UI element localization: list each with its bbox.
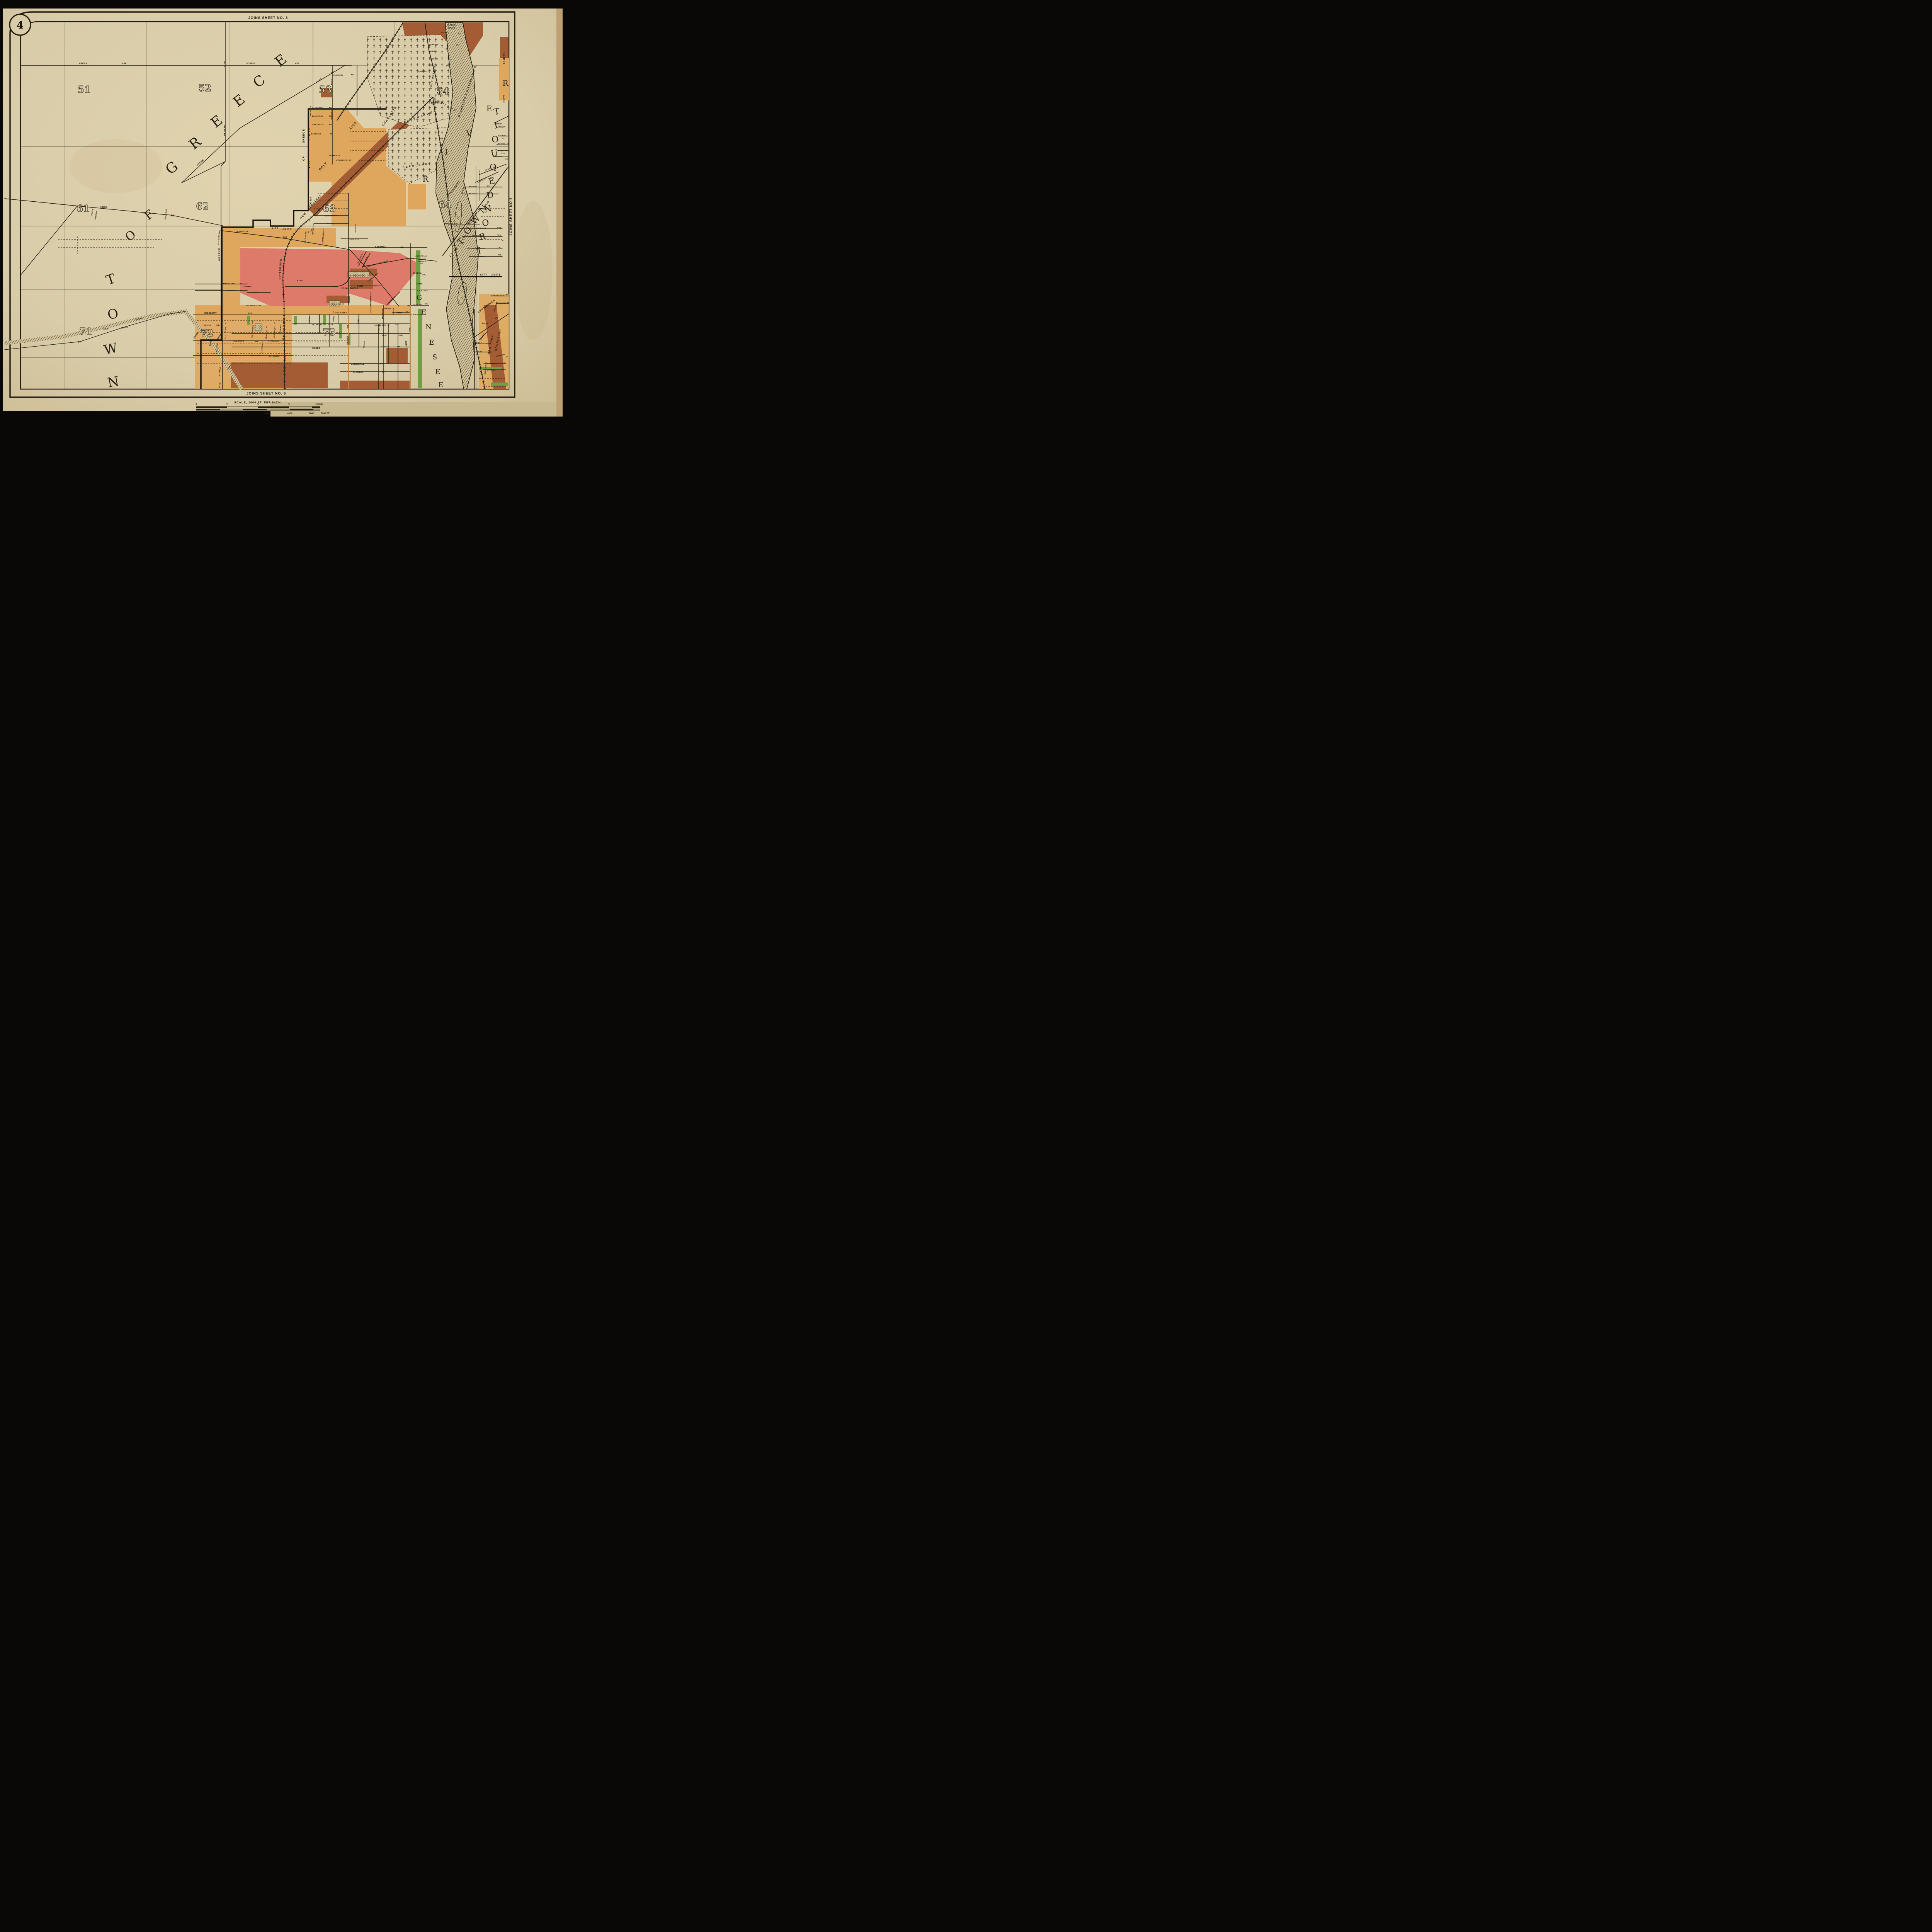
map-label: RD.	[329, 115, 333, 117]
map-label: RD.	[329, 124, 333, 126]
map-label: ROAD	[331, 79, 333, 85]
map-label: ST.	[487, 192, 490, 194]
map-label: LEWISTON	[236, 231, 248, 233]
map-label: ST.	[265, 325, 268, 328]
map-label: FLOWER CITY PK.	[374, 324, 389, 326]
map-label: WESTON	[430, 58, 438, 60]
map-label: AVE.	[398, 334, 403, 336]
map-label: JOINS SHEET NO. 3	[248, 16, 288, 20]
map-label: GATEWAY	[496, 126, 505, 128]
map-label: 4000	[287, 413, 293, 415]
map-label: ST.	[382, 371, 384, 373]
map-label: REQUA	[475, 342, 482, 344]
map-label: DEWEY	[347, 335, 349, 345]
map-label: JOINS SHEET NO. 6	[247, 391, 286, 395]
map-label: ST.	[448, 58, 451, 60]
map-label: ST.	[488, 351, 491, 353]
map-label: 52	[198, 82, 211, 94]
map-label: IROQUOIS	[498, 150, 507, 151]
map-label: R	[502, 78, 509, 88]
map-label: 61	[77, 203, 89, 214]
map-label: WHARF	[448, 27, 456, 29]
map-label: MAPLEHURST	[444, 223, 458, 225]
map-label: TYLER	[476, 351, 482, 353]
map-label: BARRY	[477, 255, 485, 258]
map-label: ST.	[446, 65, 449, 67]
map-label: EASTMAN	[375, 246, 386, 248]
map-label: RD.	[171, 215, 175, 217]
map-label: OLD	[224, 335, 227, 339]
map-label: SENECA	[495, 123, 503, 125]
map-label: LAPHAM	[413, 304, 422, 306]
map-label: LIMITS	[491, 274, 501, 276]
map-label: VERSAILLES	[491, 294, 504, 297]
map-label: PK.	[351, 74, 354, 76]
map-label: AVE	[497, 226, 502, 229]
map-label: AVE.	[252, 320, 254, 325]
map-label: MAPLEWOOD	[410, 314, 423, 316]
map-canvas: 4JOINS SHEET NO. 3JOINS SHEET NO. 6JOINS…	[0, 0, 563, 417]
map-label: 62	[196, 201, 209, 212]
map-label: RAWLINSON	[473, 248, 485, 250]
map-label: CLAY	[382, 334, 387, 336]
map-label: MENDON	[227, 289, 235, 291]
map-label: CHERRY	[430, 50, 438, 52]
map-label: MT. READ	[224, 125, 226, 136]
map-label: 73	[323, 327, 335, 338]
map-label: CLEMATIS	[333, 74, 343, 76]
map-label: MAIDEN	[79, 63, 87, 65]
map-label: VELOX ST.	[349, 238, 359, 240]
map-label: FLOWER	[312, 324, 322, 326]
map-label: ST.	[209, 334, 212, 337]
map-label: PRIMROSE	[382, 309, 384, 319]
map-label: PK.	[395, 323, 399, 326]
map-label: CITY	[308, 160, 311, 168]
map-label: ST.	[333, 311, 335, 313]
map-label: AVE	[502, 152, 505, 154]
map-label: RD.	[498, 254, 502, 256]
map-label: N.Y.S. RYS.	[417, 290, 429, 292]
map-label: ST.	[501, 369, 503, 371]
map-label: WOLDACH	[475, 227, 486, 230]
map-label: CITY	[480, 274, 487, 276]
map-label: 64	[439, 199, 451, 210]
map-label: N.	[502, 240, 504, 241]
map-label: AVE.	[295, 63, 300, 65]
map-label: 1 MILE	[315, 403, 323, 406]
map-label: LAUDERDALE	[415, 255, 427, 257]
map-label: BARTHOLF	[312, 124, 323, 126]
map-label: DESMOND	[369, 296, 372, 306]
map-label: ST	[507, 143, 509, 145]
map-label: ARMSTRONG	[470, 235, 483, 237]
map-label: LEANDER	[429, 44, 439, 46]
map-label: AVE.	[283, 236, 288, 239]
map-label: PK.	[422, 274, 426, 276]
map-label: GENESEE	[447, 24, 457, 26]
map-label: MAGEE	[381, 346, 388, 348]
map-label: SENECA	[413, 272, 422, 275]
map-label: ½	[257, 403, 259, 406]
map-label: EASTLAND	[311, 133, 321, 135]
map-label: SCHOOL NO. 41	[350, 274, 364, 276]
map-label: ST.	[425, 303, 428, 305]
map-label: E	[435, 368, 440, 376]
map-label: I	[445, 147, 448, 156]
map-label: ST.	[502, 362, 505, 364]
map-label: BUFFALO	[431, 102, 444, 104]
map-label: PARKWAY	[250, 355, 261, 357]
map-label: AVE.	[408, 327, 411, 332]
map-label: 72	[201, 327, 213, 338]
map-label: ST.	[456, 44, 459, 46]
map-label: EXTENSION	[269, 355, 280, 357]
map-label: 51	[78, 84, 90, 95]
map-label: ST.	[380, 363, 383, 365]
map-label: ST.	[506, 356, 509, 358]
map-label: RD	[498, 247, 502, 248]
map-label: ST.	[240, 289, 243, 291]
map-label: 2000	[240, 413, 246, 415]
map-label: CITY	[272, 227, 279, 230]
map-label: ST.	[240, 283, 243, 285]
map-label: HARDING	[428, 64, 437, 66]
map-label: 63	[323, 203, 335, 214]
map-label: BANKER ST.	[329, 155, 340, 156]
map-label: REEVES	[469, 192, 477, 195]
map-label: N	[425, 323, 432, 331]
map-label: BLVD.	[224, 60, 226, 67]
map-label: ST.	[507, 302, 509, 304]
map-label: CITY	[503, 95, 506, 103]
map-label: AVE.	[248, 313, 253, 315]
map-label: BOXART	[441, 32, 449, 34]
map-label: RD.	[506, 294, 509, 296]
map-label: RD.	[329, 107, 333, 109]
map-label: ST.	[473, 327, 475, 330]
map-label: 71	[79, 326, 92, 337]
map-label: RIDGE	[100, 206, 108, 209]
map-label: FOREST	[247, 63, 255, 65]
map-label: 4	[17, 20, 24, 31]
map-label: AVE.	[216, 324, 220, 326]
map-label: PARKSIDE	[493, 156, 502, 158]
map-label: LANDING	[418, 260, 426, 262]
map-label: RAND	[297, 280, 303, 282]
map-label: WINCHESTER	[324, 215, 337, 217]
map-label: WHEATLAND	[223, 283, 235, 285]
map-label: ST.	[274, 321, 276, 324]
map-label: KODAK SWITCH	[341, 287, 358, 290]
map-label: LEOPARD	[243, 286, 252, 287]
map-label: AVE.	[347, 323, 349, 328]
map-label: RD.	[434, 71, 437, 73]
map-label: RD.	[330, 133, 333, 135]
map-label: KNICKERBOCKER	[245, 304, 261, 306]
map-label: LEGRAN	[497, 143, 505, 145]
map-label: ARTHUR	[487, 369, 496, 371]
map-label: EGLANTINE	[312, 115, 323, 117]
map-label: ST.	[406, 311, 408, 313]
map-label: MERRILL	[327, 223, 336, 224]
map-label: LIMITS	[282, 228, 292, 231]
map-label: SENECA	[228, 355, 238, 357]
map-label: HANFORD	[418, 258, 426, 260]
map-label: CRES	[505, 158, 509, 160]
map-label: EXTENSION	[269, 340, 279, 342]
map-label: MAGEE	[312, 347, 320, 350]
map-label: ST	[502, 137, 505, 139]
map-label: LANE	[121, 63, 127, 65]
map-label: S	[432, 353, 437, 361]
map-label: AVE.	[400, 247, 405, 249]
map-label: ST.	[487, 185, 490, 187]
map-label: GREECE	[303, 129, 305, 143]
map-label: ST.	[490, 177, 493, 179]
screenshot-root: 4JOINS SHEET NO. 3JOINS SHEET NO. 6JOINS…	[0, 0, 563, 417]
map-label: AVE.	[396, 345, 401, 347]
map-label: AVE	[497, 234, 501, 236]
map-label: KEEHL	[417, 283, 423, 285]
map-label: SCHOOL NO. 40	[331, 303, 344, 305]
map-label: MEXICO	[204, 324, 211, 326]
map-label: 53	[319, 84, 332, 95]
map-label: PALM	[357, 285, 363, 287]
map-label: ST.	[374, 285, 377, 287]
map-label: E	[438, 381, 443, 389]
map-label: ST.	[458, 32, 461, 34]
map-label: TOWN	[310, 196, 312, 206]
map-label: MINDER	[393, 308, 395, 315]
map-label: REGENT	[469, 185, 477, 188]
map-label: LELAND	[498, 134, 506, 136]
map-label: RD.	[468, 223, 471, 225]
map-label: 3000	[264, 413, 269, 415]
map-label: RIDGE	[482, 323, 489, 325]
map-label: CITY	[328, 324, 333, 326]
map-label: 5280 FT.	[321, 413, 330, 415]
map-label: GREECE	[218, 248, 221, 261]
map-label: R	[422, 174, 429, 184]
map-label: AVE	[255, 340, 259, 342]
map-label: E	[429, 338, 434, 347]
map-label: RD	[224, 321, 227, 324]
map-label: E	[486, 104, 492, 113]
map-label: FLORENCE	[312, 107, 323, 109]
map-label: LYNCHESTER ST.	[336, 159, 351, 161]
map-label: AVE.	[486, 343, 490, 345]
map-label: PAUL	[473, 333, 475, 338]
map-label: ALBEMARLE	[351, 363, 364, 366]
map-label: ALAMEDA	[353, 371, 363, 374]
map-label: OAKWOOD	[310, 106, 311, 116]
map-label: RIDGEWAY	[335, 312, 347, 314]
map-label: LIMITS	[503, 52, 506, 64]
map-label: 5000	[309, 413, 314, 415]
map-label: V	[466, 129, 472, 138]
map-label: LION	[253, 291, 257, 293]
map-label: AVE.	[398, 312, 403, 314]
map-label: OF	[303, 156, 305, 161]
map-label: ROSS ST.	[354, 224, 356, 233]
map-label: RIDGEWAY	[204, 312, 217, 315]
map-label: CLAY	[311, 333, 317, 335]
map-label: ELECTRIC	[233, 340, 244, 342]
map-label: 1000	[217, 413, 223, 415]
map-label: RD.	[420, 263, 423, 265]
map-label: HAYWARD	[487, 362, 498, 365]
map-label: G	[417, 294, 422, 302]
map-label: JOINS SHEET NO 5	[509, 197, 513, 235]
map-label: 54	[436, 85, 449, 97]
map-label: BARDIN	[383, 308, 391, 310]
map-label: HOLCROFT	[418, 70, 429, 72]
